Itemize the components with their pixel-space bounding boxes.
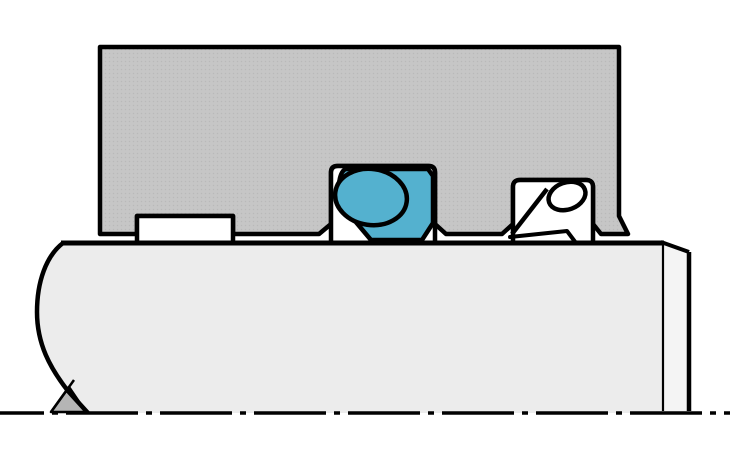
piston-rod (37, 243, 663, 413)
guide-ring (137, 216, 233, 244)
seal-cross-section-diagram (0, 0, 730, 464)
rod-end-chamfer-face (663, 243, 689, 413)
diagram-canvas (0, 0, 730, 464)
drawing-layer (0, 47, 730, 413)
